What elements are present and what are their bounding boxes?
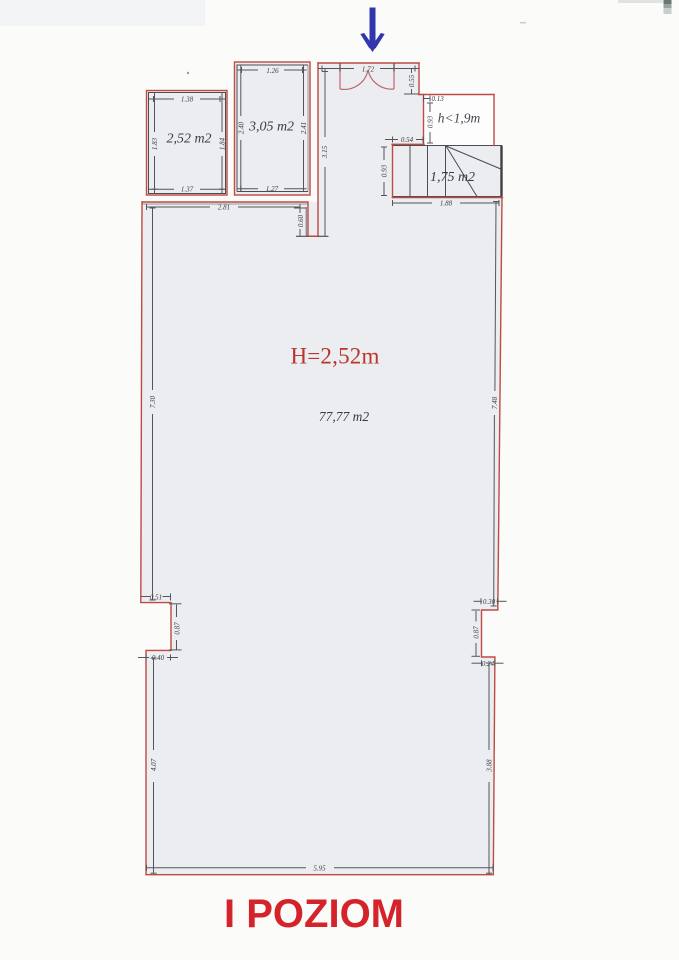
svg-text:7.30: 7.30 [149, 395, 157, 408]
svg-text:0.30: 0.30 [483, 598, 496, 606]
svg-text:0.13: 0.13 [432, 95, 445, 103]
svg-text:1.27: 1.27 [266, 185, 279, 193]
svg-text:0.40: 0.40 [152, 654, 165, 662]
svg-text:1.26: 1.26 [266, 67, 279, 75]
svg-text:0.54: 0.54 [401, 136, 414, 144]
svg-text:0.93: 0.93 [427, 115, 435, 128]
svg-text:77,77 m2: 77,77 m2 [319, 409, 369, 424]
svg-text:2.40: 2.40 [237, 121, 245, 134]
svg-text:1,75 m2: 1,75 m2 [430, 170, 475, 185]
svg-text:1.38: 1.38 [181, 96, 194, 104]
svg-text:1.37: 1.37 [181, 186, 194, 194]
svg-text:H=2,52m: H=2,52m [290, 344, 379, 369]
svg-text:1.72: 1.72 [362, 66, 375, 74]
svg-text:0.93: 0.93 [381, 164, 389, 177]
svg-text:1.88: 1.88 [440, 200, 453, 208]
svg-text:2,52 m2: 2,52 m2 [166, 132, 211, 147]
svg-text:2.81: 2.81 [218, 204, 230, 212]
svg-text:5.95: 5.95 [313, 864, 326, 872]
svg-text:0.87: 0.87 [472, 626, 480, 639]
svg-text:1.83: 1.83 [151, 137, 159, 150]
svg-text:4.07: 4.07 [150, 758, 158, 771]
svg-text:0.51: 0.51 [150, 593, 162, 601]
svg-text:0.60: 0.60 [297, 214, 305, 227]
svg-text:I POZIOM: I POZIOM [224, 892, 404, 936]
svg-text:1.84: 1.84 [219, 137, 227, 150]
svg-text:3,05 m2: 3,05 m2 [248, 120, 294, 135]
svg-text:3.15: 3.15 [321, 145, 329, 159]
svg-text:0.24: 0.24 [482, 660, 495, 668]
svg-text:2.41: 2.41 [300, 122, 308, 134]
svg-text:h<1,9m: h<1,9m [438, 111, 481, 126]
svg-text:7.48: 7.48 [491, 396, 499, 409]
svg-text:0.87: 0.87 [174, 622, 182, 635]
svg-text:0.55: 0.55 [408, 74, 416, 87]
svg-text:3.88: 3.88 [486, 759, 494, 773]
